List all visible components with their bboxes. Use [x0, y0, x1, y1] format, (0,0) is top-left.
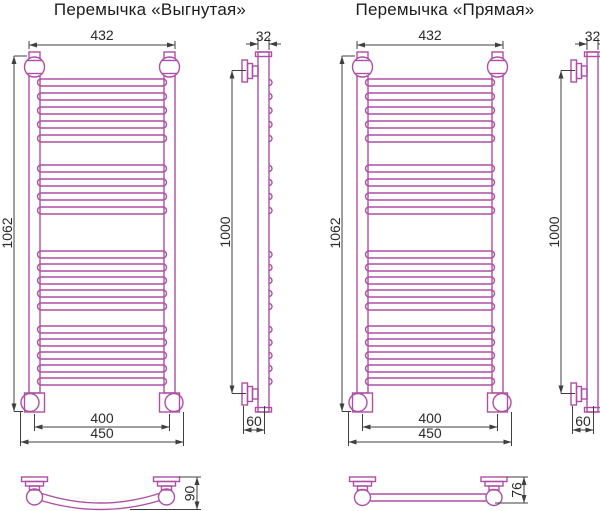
- straight-side-view: [571, 52, 600, 412]
- drawing-canvas: Перемычка «Выгнутая» 432 10: [0, 0, 600, 511]
- rung: [38, 135, 167, 142]
- curved-title: Перемычка «Выгнутая»: [54, 0, 246, 19]
- bottom-valve-stem: [582, 389, 588, 399]
- right-bottom-fitting: [488, 393, 508, 412]
- left-bottom-union: [349, 394, 367, 412]
- dim-inner-width: 400: [418, 410, 442, 426]
- curved-front-view: [21, 52, 183, 412]
- rung: [366, 207, 495, 214]
- dim-width: 432: [418, 27, 442, 43]
- rung: [38, 277, 167, 284]
- dim-height: 1062: [327, 217, 343, 248]
- dim-outer-width: 450: [418, 425, 442, 441]
- rung: [366, 79, 495, 86]
- dim-detail-depth: 90: [182, 486, 198, 502]
- left-riser-tube: [29, 52, 40, 393]
- rung: [366, 290, 495, 297]
- rung: [366, 326, 495, 333]
- bracket-ball: [355, 490, 371, 506]
- rung: [366, 365, 495, 372]
- technical-drawing: Перемычка «Выгнутая» 432 10: [0, 0, 600, 511]
- left-bottom-union: [21, 394, 39, 412]
- left-bottom-fitting: [353, 393, 373, 412]
- curved-side-dimensions: 32 1000 60: [217, 28, 281, 434]
- dim-side-width: 32: [256, 28, 272, 44]
- rung: [366, 264, 495, 271]
- rung: [38, 303, 167, 310]
- left-riser-tube: [357, 52, 368, 393]
- straight-model: Перемычка «Прямая» 432 1062: [327, 0, 600, 506]
- top-valve-body: [248, 64, 253, 79]
- top-valve-stem: [582, 66, 588, 76]
- straight-front-dimensions: 432 1062 400 450: [327, 27, 512, 446]
- rung: [366, 121, 495, 128]
- rung: [366, 277, 495, 284]
- curved-model: Перемычка «Выгнутая» 432 10: [0, 0, 281, 510]
- dim-width: 432: [90, 27, 114, 43]
- right-bottom-union: [165, 394, 183, 412]
- bottom-valve-body: [248, 387, 253, 402]
- rung: [366, 193, 495, 200]
- bottom-valve-stem: [253, 389, 259, 399]
- side-tube: [258, 52, 269, 412]
- right-riser-tube: [492, 52, 503, 393]
- rung: [38, 207, 167, 214]
- curved-bar-top-edge: [42, 494, 159, 504]
- bracket-ball: [159, 489, 175, 505]
- rung: [38, 107, 167, 114]
- bracket-ball: [27, 489, 43, 505]
- dim-side-depth: 60: [246, 413, 262, 429]
- dim-side-depth: 60: [575, 413, 591, 429]
- curved-crossbar-detail: 90: [22, 477, 202, 510]
- rung: [38, 121, 167, 128]
- straight-crossbar-detail: 76: [350, 477, 529, 506]
- rung: [38, 326, 167, 333]
- rung: [38, 365, 167, 372]
- rung: [38, 339, 167, 346]
- rung: [38, 378, 167, 385]
- curved-side-view: [242, 52, 272, 412]
- straight-front-view: [349, 52, 511, 412]
- dim-detail-depth: 76: [509, 482, 525, 498]
- rung: [38, 79, 167, 86]
- rung: [366, 251, 495, 258]
- right-bottom-fitting: [160, 393, 180, 412]
- rung: [38, 193, 167, 200]
- rung: [366, 179, 495, 186]
- rung: [366, 378, 495, 385]
- straight-title: Перемычка «Прямая»: [356, 0, 535, 19]
- rung: [38, 290, 167, 297]
- side-tube: [587, 52, 598, 412]
- bottom-valve-body: [577, 387, 582, 402]
- rung: [38, 264, 167, 271]
- right-riser-tube: [164, 52, 175, 393]
- top-valve-body: [577, 64, 582, 79]
- rung: [366, 135, 495, 142]
- dim-side-height: 1000: [217, 216, 233, 247]
- rung: [38, 93, 167, 100]
- straight-rung-group: [366, 79, 495, 385]
- left-bottom-fitting: [25, 393, 45, 412]
- dim-outer-width: 450: [90, 425, 114, 441]
- rung: [38, 352, 167, 359]
- curved-rung-group: [38, 79, 167, 385]
- right-bottom-union: [493, 394, 511, 412]
- rung: [38, 251, 167, 258]
- rung: [366, 303, 495, 310]
- rung: [38, 165, 167, 172]
- rung: [366, 352, 495, 359]
- rung: [366, 339, 495, 346]
- dim-side-width: 32: [585, 28, 600, 44]
- top-valve-stem: [253, 66, 259, 76]
- curved-bar-bottom-edge: [41, 501, 160, 510]
- dim-side-height: 1000: [546, 216, 562, 247]
- dim-height: 1062: [0, 217, 15, 248]
- rung: [366, 165, 495, 172]
- straight-side-dimensions: 32 1000 60: [546, 28, 600, 434]
- dim-inner-width: 400: [90, 410, 114, 426]
- rung: [38, 179, 167, 186]
- curved-front-dimensions: 432 1062 400 450: [0, 27, 184, 446]
- rung: [366, 107, 495, 114]
- rung: [366, 93, 495, 100]
